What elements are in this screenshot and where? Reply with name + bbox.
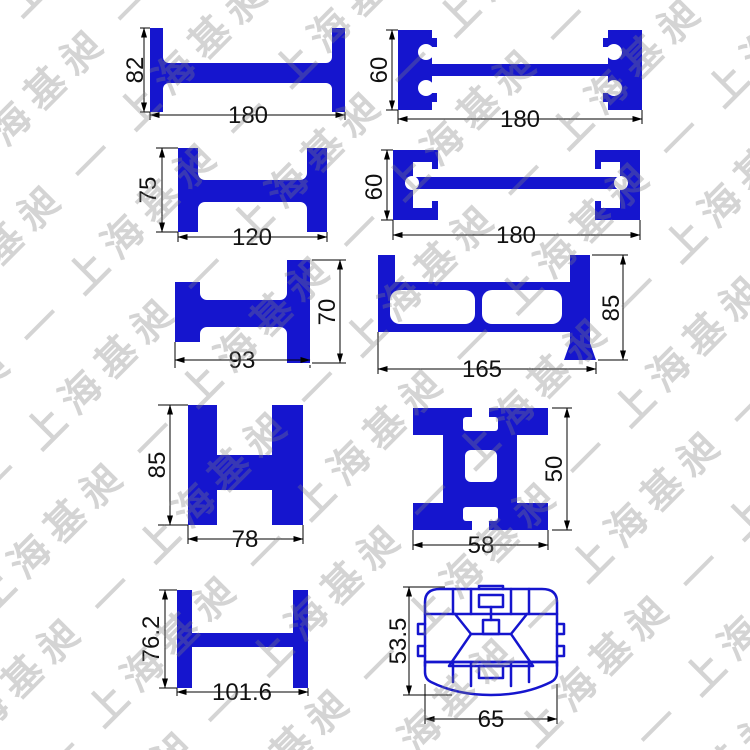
profile-3-svg: 75 120 xyxy=(128,140,343,245)
hollow-chamber xyxy=(482,290,562,324)
tab xyxy=(603,38,608,47)
profile-7-svg: 85 78 xyxy=(145,398,340,568)
profile-1-shape xyxy=(150,28,345,112)
bottom-flange xyxy=(595,208,620,220)
right-flange xyxy=(287,260,310,363)
side-walls xyxy=(425,614,557,666)
right-flange xyxy=(293,590,308,688)
center-hole xyxy=(465,450,497,482)
height-dimension-label: 85 xyxy=(598,295,625,322)
height-dimension-label: 85 xyxy=(144,452,171,479)
height-dimension-label: 50 xyxy=(541,456,568,483)
left-flange xyxy=(177,590,192,688)
left-flange xyxy=(150,28,163,112)
web xyxy=(163,63,332,83)
right-foot xyxy=(564,343,596,360)
screw-hole xyxy=(405,176,419,190)
profile-drawing-3: 75 120 xyxy=(128,140,343,245)
t-slot-cavity xyxy=(463,507,498,521)
profile-drawing-5: 70 93 xyxy=(150,252,375,387)
profile-2-svg: 60 180 xyxy=(365,18,650,130)
right-flange xyxy=(272,405,303,525)
width-dimension-label: 180 xyxy=(500,106,540,133)
height-dimension-label: 60 xyxy=(361,174,388,201)
height-dimension-label: 70 xyxy=(314,299,341,326)
height-dimension-label: 60 xyxy=(366,57,393,84)
profile-drawing-7: 85 78 xyxy=(145,398,340,568)
web xyxy=(432,64,608,76)
hollow-chamber xyxy=(390,290,475,324)
top-flange xyxy=(595,150,620,162)
profile-9-dimensions: 76.2 101.6 xyxy=(138,590,308,706)
profile-3-shape xyxy=(178,148,327,232)
height-dimension-label: 53.5 xyxy=(385,618,412,665)
width-dimension-label: 78 xyxy=(232,526,259,553)
profile-drawing-2: 60 180 xyxy=(365,18,650,130)
right-block xyxy=(608,30,642,110)
profile-6-svg: 85 165 xyxy=(370,248,660,388)
width-dimension-label: 101.6 xyxy=(212,679,272,706)
height-dimension-label: 82 xyxy=(122,57,149,84)
profile-drawing-4: 60 180 xyxy=(360,140,650,245)
width-dimension-label: 120 xyxy=(232,224,272,251)
lip xyxy=(595,201,601,208)
top-pocket xyxy=(479,595,503,607)
left-block xyxy=(398,30,432,110)
drawing-canvas: 82 180 xyxy=(0,0,750,750)
width-dimension-label: 180 xyxy=(228,102,268,129)
height-dimension-label: 76.2 xyxy=(138,616,165,663)
slit xyxy=(601,84,610,92)
slit xyxy=(601,48,610,56)
slit xyxy=(430,48,439,56)
profile-8-svg: 50 58 xyxy=(395,400,585,565)
slit xyxy=(430,84,439,92)
profile-1-svg: 82 180 xyxy=(128,18,358,128)
profile-8-cutouts xyxy=(463,408,498,530)
lip xyxy=(432,201,438,208)
web xyxy=(200,300,287,327)
web xyxy=(217,455,272,490)
height-dimension-label: 75 xyxy=(135,177,162,204)
profile-5-svg: 70 93 xyxy=(150,252,375,387)
profile-drawing-6: 85 165 xyxy=(370,248,660,388)
width-dimension-label: 93 xyxy=(229,347,256,374)
tab xyxy=(432,38,437,47)
profile-2-shape xyxy=(398,30,642,110)
top-flange xyxy=(413,150,438,162)
profile-4-svg: 60 180 xyxy=(360,140,650,245)
screw-hole xyxy=(614,176,628,190)
tab xyxy=(603,93,608,102)
profile-10-shape xyxy=(418,586,564,695)
profile-drawing-10: 53.5 65 xyxy=(390,578,585,748)
right-flange xyxy=(570,255,590,353)
web xyxy=(198,180,307,202)
profile-7-shape xyxy=(188,405,303,525)
center-box xyxy=(483,620,499,634)
bottom-flange xyxy=(413,208,438,220)
profile-9-shape xyxy=(177,590,308,688)
right-flange xyxy=(307,148,327,232)
right-flange xyxy=(332,28,345,112)
web xyxy=(192,633,293,647)
lip xyxy=(432,162,438,169)
web xyxy=(413,177,620,189)
profile-drawing-1: 82 180 xyxy=(128,18,358,128)
profile-drawing-9: 76.2 101.6 xyxy=(135,578,350,703)
width-dimension-label: 65 xyxy=(478,706,505,733)
width-dimension-label: 58 xyxy=(468,532,495,559)
profile-9-svg: 76.2 101.6 xyxy=(135,578,350,703)
left-flange xyxy=(175,282,200,342)
bottom-pocket xyxy=(479,666,503,678)
left-flange xyxy=(188,405,217,525)
t-slot-cavity xyxy=(463,417,498,431)
inner-struts xyxy=(455,607,527,634)
lip xyxy=(595,162,601,169)
profile-drawing-8: 50 58 xyxy=(395,400,585,565)
left-flange xyxy=(178,148,198,232)
tab xyxy=(432,93,437,102)
profile-4-shape xyxy=(393,150,640,220)
width-dimension-label: 165 xyxy=(462,356,502,383)
profile-10-svg: 53.5 65 xyxy=(390,578,585,748)
width-dimension-label: 180 xyxy=(496,222,536,249)
